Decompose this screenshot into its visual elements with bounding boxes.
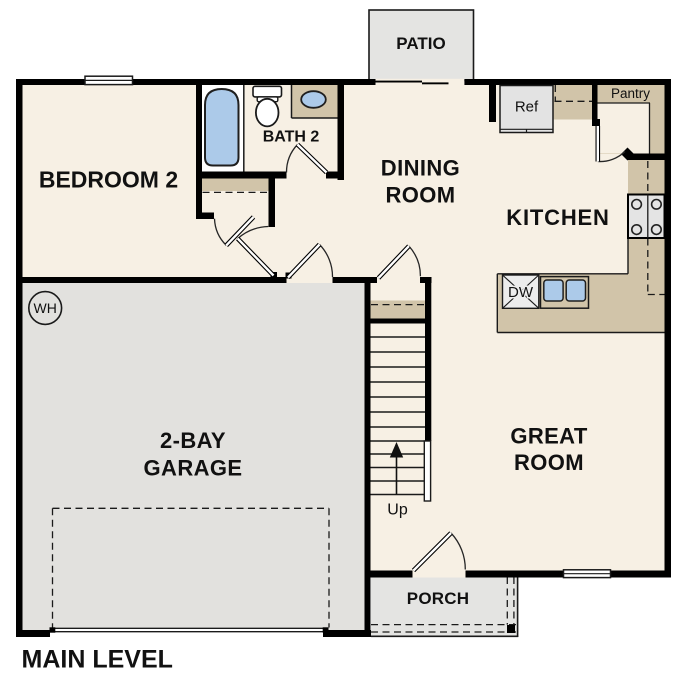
svg-text:ROOM: ROOM — [385, 183, 455, 208]
svg-text:Pantry: Pantry — [611, 86, 650, 101]
svg-text:PORCH: PORCH — [407, 589, 469, 608]
svg-text:DW: DW — [508, 284, 534, 301]
svg-text:Up: Up — [387, 502, 408, 519]
svg-text:BEDROOM 2: BEDROOM 2 — [39, 167, 178, 193]
svg-text:GREAT: GREAT — [510, 424, 588, 449]
svg-text:2-BAY: 2-BAY — [160, 428, 226, 453]
svg-text:Ref: Ref — [515, 99, 539, 116]
svg-text:DINING: DINING — [381, 156, 460, 181]
svg-text:PATIO: PATIO — [396, 34, 445, 53]
svg-text:MAIN LEVEL: MAIN LEVEL — [22, 646, 173, 674]
svg-text:KITCHEN: KITCHEN — [506, 205, 609, 230]
svg-text:WH: WH — [34, 300, 57, 316]
svg-text:ROOM: ROOM — [514, 450, 584, 475]
svg-text:GARAGE: GARAGE — [144, 456, 243, 481]
svg-text:BATH 2: BATH 2 — [263, 129, 320, 146]
